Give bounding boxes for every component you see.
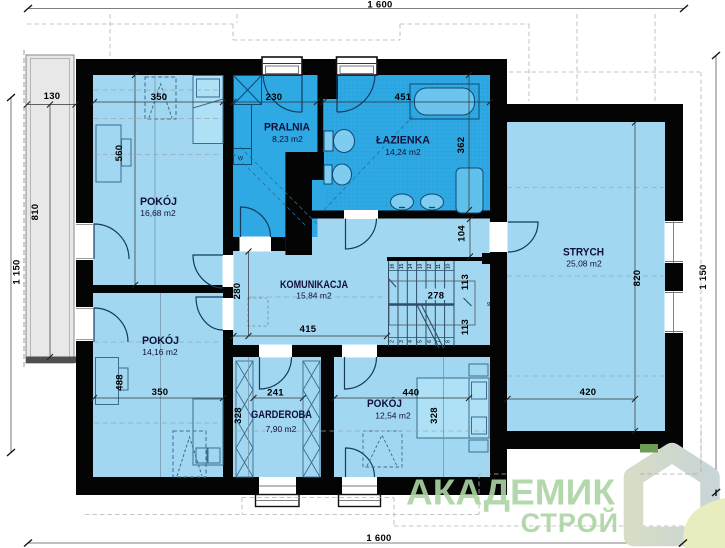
svg-text:810: 810 (30, 204, 41, 221)
svg-text:488: 488 (115, 374, 126, 391)
svg-text:13: 13 (418, 264, 424, 270)
svg-text:328: 328 (233, 407, 244, 424)
svg-text:415: 415 (300, 324, 317, 335)
svg-text:278: 278 (428, 291, 445, 302)
svg-text:1 150: 1 150 (698, 264, 709, 289)
svg-text:14,24 m2: 14,24 m2 (385, 147, 421, 157)
svg-text:820: 820 (632, 270, 643, 287)
svg-text:130: 130 (44, 91, 61, 102)
svg-text:15,84 m2: 15,84 m2 (296, 291, 332, 301)
svg-text:8,23 m2: 8,23 m2 (272, 134, 303, 144)
svg-text:12: 12 (427, 264, 433, 270)
svg-text:451: 451 (395, 92, 412, 103)
svg-text:5: 5 (418, 340, 424, 343)
svg-text:1 150: 1 150 (12, 259, 23, 284)
svg-text:113: 113 (460, 274, 471, 290)
svg-text:15: 15 (399, 264, 405, 270)
svg-text:14,16 m2: 14,16 m2 (142, 347, 178, 357)
svg-text:350: 350 (152, 387, 169, 398)
svg-text:6: 6 (427, 340, 433, 343)
svg-text:2: 2 (390, 340, 396, 343)
svg-text:PRALNIA: PRALNIA (264, 122, 310, 134)
svg-text:KOMUNIKACJA: KOMUNIKACJA (280, 279, 348, 291)
svg-text:7: 7 (436, 340, 442, 343)
svg-text:328: 328 (429, 407, 440, 424)
svg-text:241: 241 (267, 388, 284, 399)
svg-text:POKÓJ: POKÓJ (367, 397, 402, 410)
svg-text:16,68 m2: 16,68 m2 (140, 208, 176, 218)
svg-text:560: 560 (114, 145, 125, 162)
svg-text:14: 14 (408, 264, 414, 270)
svg-text:25,08 m2: 25,08 m2 (566, 259, 602, 269)
svg-text:280: 280 (232, 283, 243, 300)
svg-text:230: 230 (266, 92, 283, 103)
svg-text:12,54 m2: 12,54 m2 (375, 411, 411, 421)
svg-text:420: 420 (580, 387, 597, 398)
svg-text:350: 350 (151, 92, 168, 103)
svg-text:1 600: 1 600 (367, 0, 392, 11)
svg-text:440: 440 (403, 388, 420, 399)
svg-text:STRYCH: STRYCH (563, 247, 604, 259)
svg-text:11: 11 (436, 264, 442, 269)
svg-text:362: 362 (456, 137, 467, 154)
svg-text:9: 9 (487, 302, 490, 308)
svg-text:8: 8 (446, 340, 452, 343)
svg-text:104: 104 (457, 225, 468, 242)
svg-text:113: 113 (460, 319, 471, 335)
svg-text:4: 4 (408, 340, 414, 343)
svg-text:POKÓJ: POKÓJ (140, 195, 177, 208)
svg-text:ŁAZIENKA: ŁAZIENKA (376, 135, 430, 147)
svg-text:GARDEROBA: GARDEROBA (251, 409, 312, 421)
svg-text:3: 3 (399, 340, 405, 343)
svg-text:7,90 m2: 7,90 m2 (266, 424, 297, 434)
svg-text:АКАДЕМИК: АКАДЕМИК (406, 472, 616, 513)
svg-text:СТРОЙ: СТРОЙ (521, 507, 619, 538)
svg-text:16: 16 (390, 264, 396, 270)
svg-text:POKÓJ: POKÓJ (142, 334, 179, 347)
svg-text:1 600: 1 600 (366, 533, 391, 544)
svg-text:10: 10 (446, 264, 452, 270)
